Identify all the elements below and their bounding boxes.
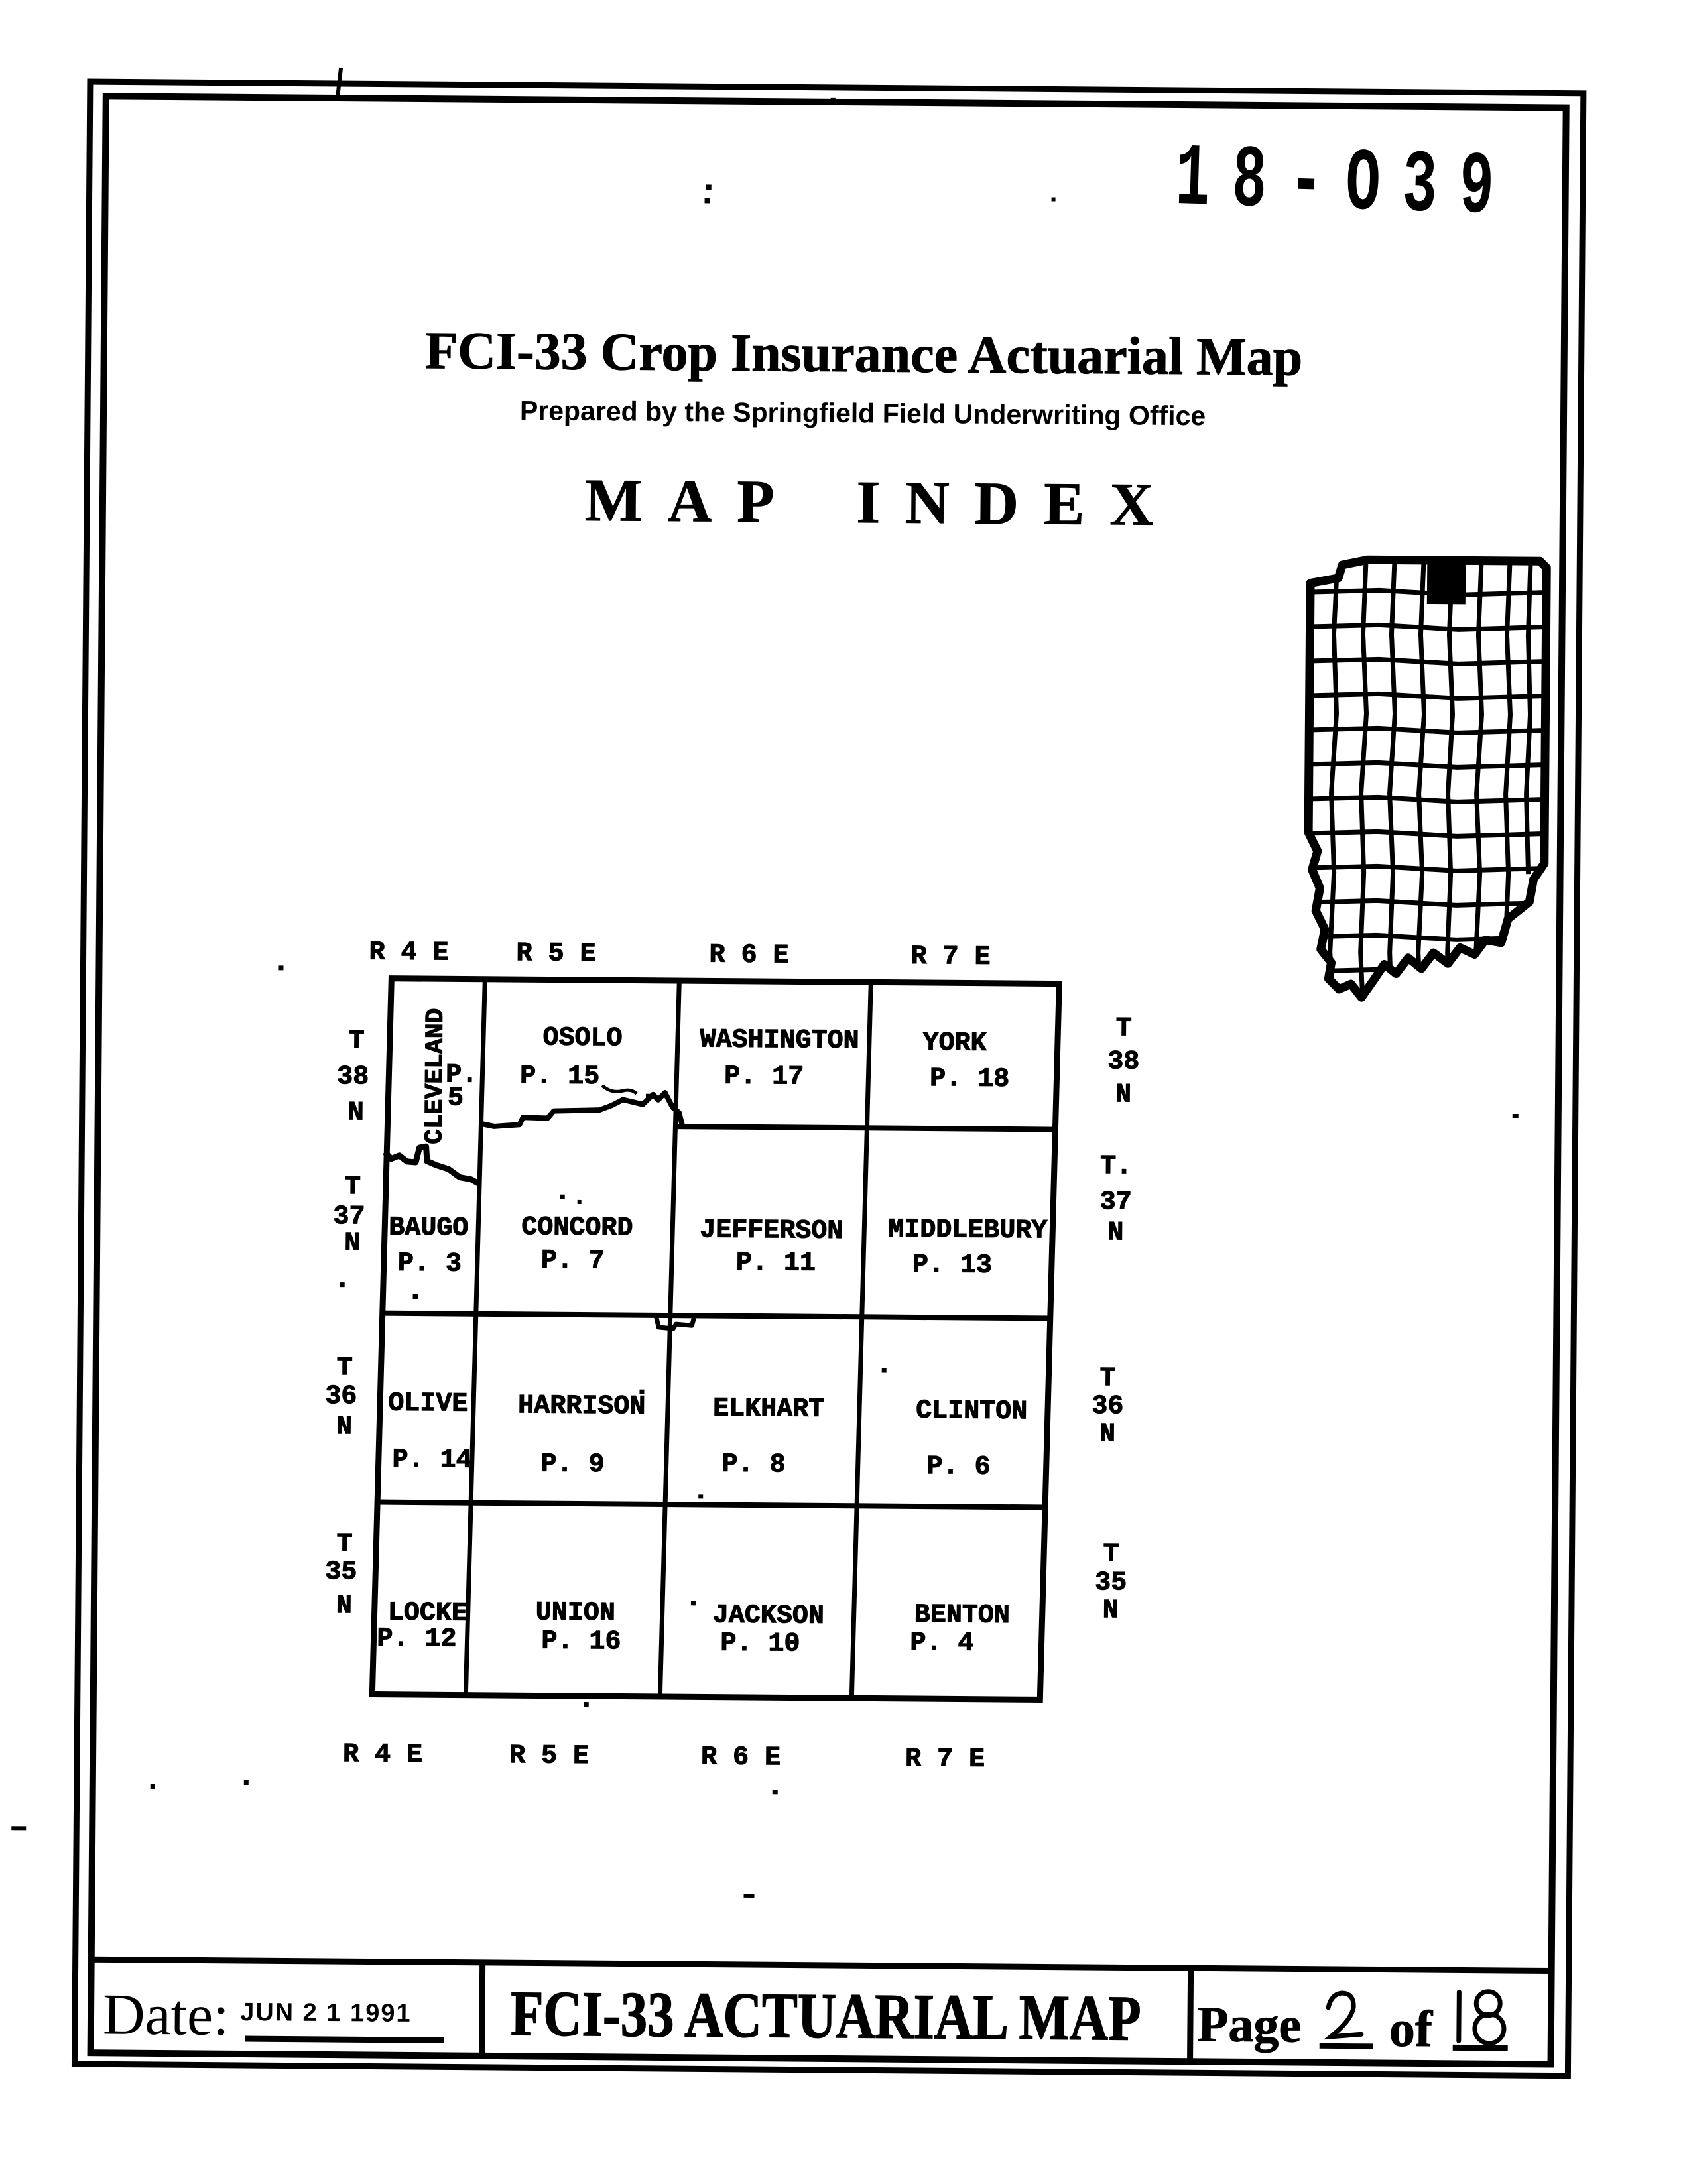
- svg-text:P. 12: P. 12: [377, 1624, 456, 1655]
- svg-text:P. 17: P. 17: [724, 1062, 804, 1093]
- svg-text:BAUGO: BAUGO: [389, 1213, 468, 1244]
- svg-text:P. 7: P. 7: [541, 1246, 605, 1276]
- svg-text:N: N: [336, 1591, 352, 1621]
- svg-text:Prepared by the Springfield Fi: Prepared by the Springfield Field Underw…: [520, 395, 1206, 431]
- svg-text:P. 14: P. 14: [392, 1445, 471, 1476]
- svg-text:JACKSON: JACKSON: [713, 1601, 824, 1632]
- svg-text:T: T: [1116, 1014, 1132, 1044]
- svg-text:P. 11: P. 11: [736, 1248, 816, 1279]
- svg-text:R 7 E: R 7 E: [910, 942, 990, 973]
- svg-text:37: 37: [1100, 1187, 1132, 1217]
- svg-text:37: 37: [333, 1202, 365, 1232]
- svg-text:FCI-33 ACTUARIAL MAP: FCI-33 ACTUARIAL MAP: [511, 1978, 1141, 2054]
- svg-text:Date:: Date:: [103, 1982, 229, 2047]
- svg-text:ELKHART: ELKHART: [713, 1394, 824, 1425]
- svg-text:T: T: [345, 1172, 361, 1202]
- svg-text:R 6 E: R 6 E: [701, 1742, 781, 1773]
- svg-text:JUN 2 1 1991: JUN 2 1 1991: [240, 1998, 412, 2028]
- svg-text:R 6 E: R 6 E: [709, 940, 788, 971]
- svg-text:CLINTON: CLINTON: [916, 1396, 1027, 1427]
- svg-text:P. 9: P. 9: [540, 1449, 604, 1480]
- svg-text:N: N: [1099, 1420, 1115, 1449]
- svg-text:T: T: [1099, 1364, 1115, 1394]
- svg-text:R 4 E: R 4 E: [369, 938, 448, 968]
- svg-text:36: 36: [325, 1382, 357, 1412]
- svg-text:38: 38: [337, 1062, 369, 1092]
- svg-text:P. 8: P. 8: [721, 1450, 785, 1481]
- svg-text:N: N: [348, 1098, 364, 1128]
- svg-text:Page: Page: [1198, 1996, 1302, 2053]
- svg-text:YORK: YORK: [922, 1028, 986, 1059]
- svg-text:OSOLO: OSOLO: [542, 1024, 622, 1054]
- svg-text:18-O39: 18-O39: [1174, 130, 1517, 239]
- svg-text:T: T: [348, 1026, 364, 1056]
- svg-text:N: N: [1107, 1218, 1123, 1248]
- svg-text:P. 6: P. 6: [926, 1452, 990, 1483]
- svg-text:of: of: [1389, 2000, 1434, 2058]
- svg-text:P. 3: P. 3: [398, 1249, 462, 1280]
- svg-text:CONCORD: CONCORD: [521, 1213, 633, 1243]
- svg-text:R 5 E: R 5 E: [516, 939, 595, 969]
- svg-text:R 7 E: R 7 E: [905, 1744, 985, 1775]
- svg-text:MIDDLEBURY: MIDDLEBURY: [888, 1215, 1047, 1246]
- svg-text:N: N: [1115, 1080, 1131, 1110]
- svg-text:P. 4: P. 4: [910, 1628, 973, 1659]
- svg-text:R 5 E: R 5 E: [509, 1741, 589, 1772]
- svg-text:P. 15: P. 15: [520, 1062, 599, 1092]
- svg-text:UNION: UNION: [536, 1598, 615, 1628]
- svg-text:5: 5: [448, 1083, 464, 1113]
- svg-text:BENTON: BENTON: [914, 1601, 1010, 1631]
- svg-text:P. 10: P. 10: [720, 1629, 800, 1660]
- svg-text:R 4 E: R 4 E: [343, 1740, 422, 1770]
- svg-text:T: T: [1103, 1540, 1119, 1569]
- svg-text:FCI-33 Crop Insurance Actuaria: FCI-33 Crop Insurance Actuarial Map: [425, 322, 1303, 387]
- svg-text:WASHINGTON: WASHINGTON: [700, 1025, 859, 1056]
- svg-text:MAP INDEX: MAP INDEX: [585, 466, 1180, 538]
- svg-text:36: 36: [1092, 1392, 1123, 1422]
- svg-text:N: N: [336, 1412, 352, 1442]
- svg-text:JEFFERSON: JEFFERSON: [700, 1215, 843, 1246]
- svg-text:35: 35: [1095, 1568, 1127, 1598]
- svg-text:P. 16: P. 16: [541, 1627, 621, 1658]
- svg-text:T: T: [336, 1530, 352, 1559]
- svg-text:T.: T.: [1100, 1152, 1132, 1182]
- svg-text:OLIVE: OLIVE: [388, 1389, 468, 1420]
- svg-text:38: 38: [1107, 1047, 1139, 1077]
- svg-text:HARRISON: HARRISON: [518, 1391, 645, 1422]
- svg-text:35: 35: [325, 1557, 357, 1587]
- svg-text:N: N: [1103, 1596, 1119, 1626]
- svg-text:T: T: [337, 1353, 353, 1383]
- svg-text:N: N: [344, 1229, 360, 1258]
- svg-text:P. 18: P. 18: [930, 1064, 1009, 1095]
- svg-text:P. 13: P. 13: [912, 1250, 992, 1281]
